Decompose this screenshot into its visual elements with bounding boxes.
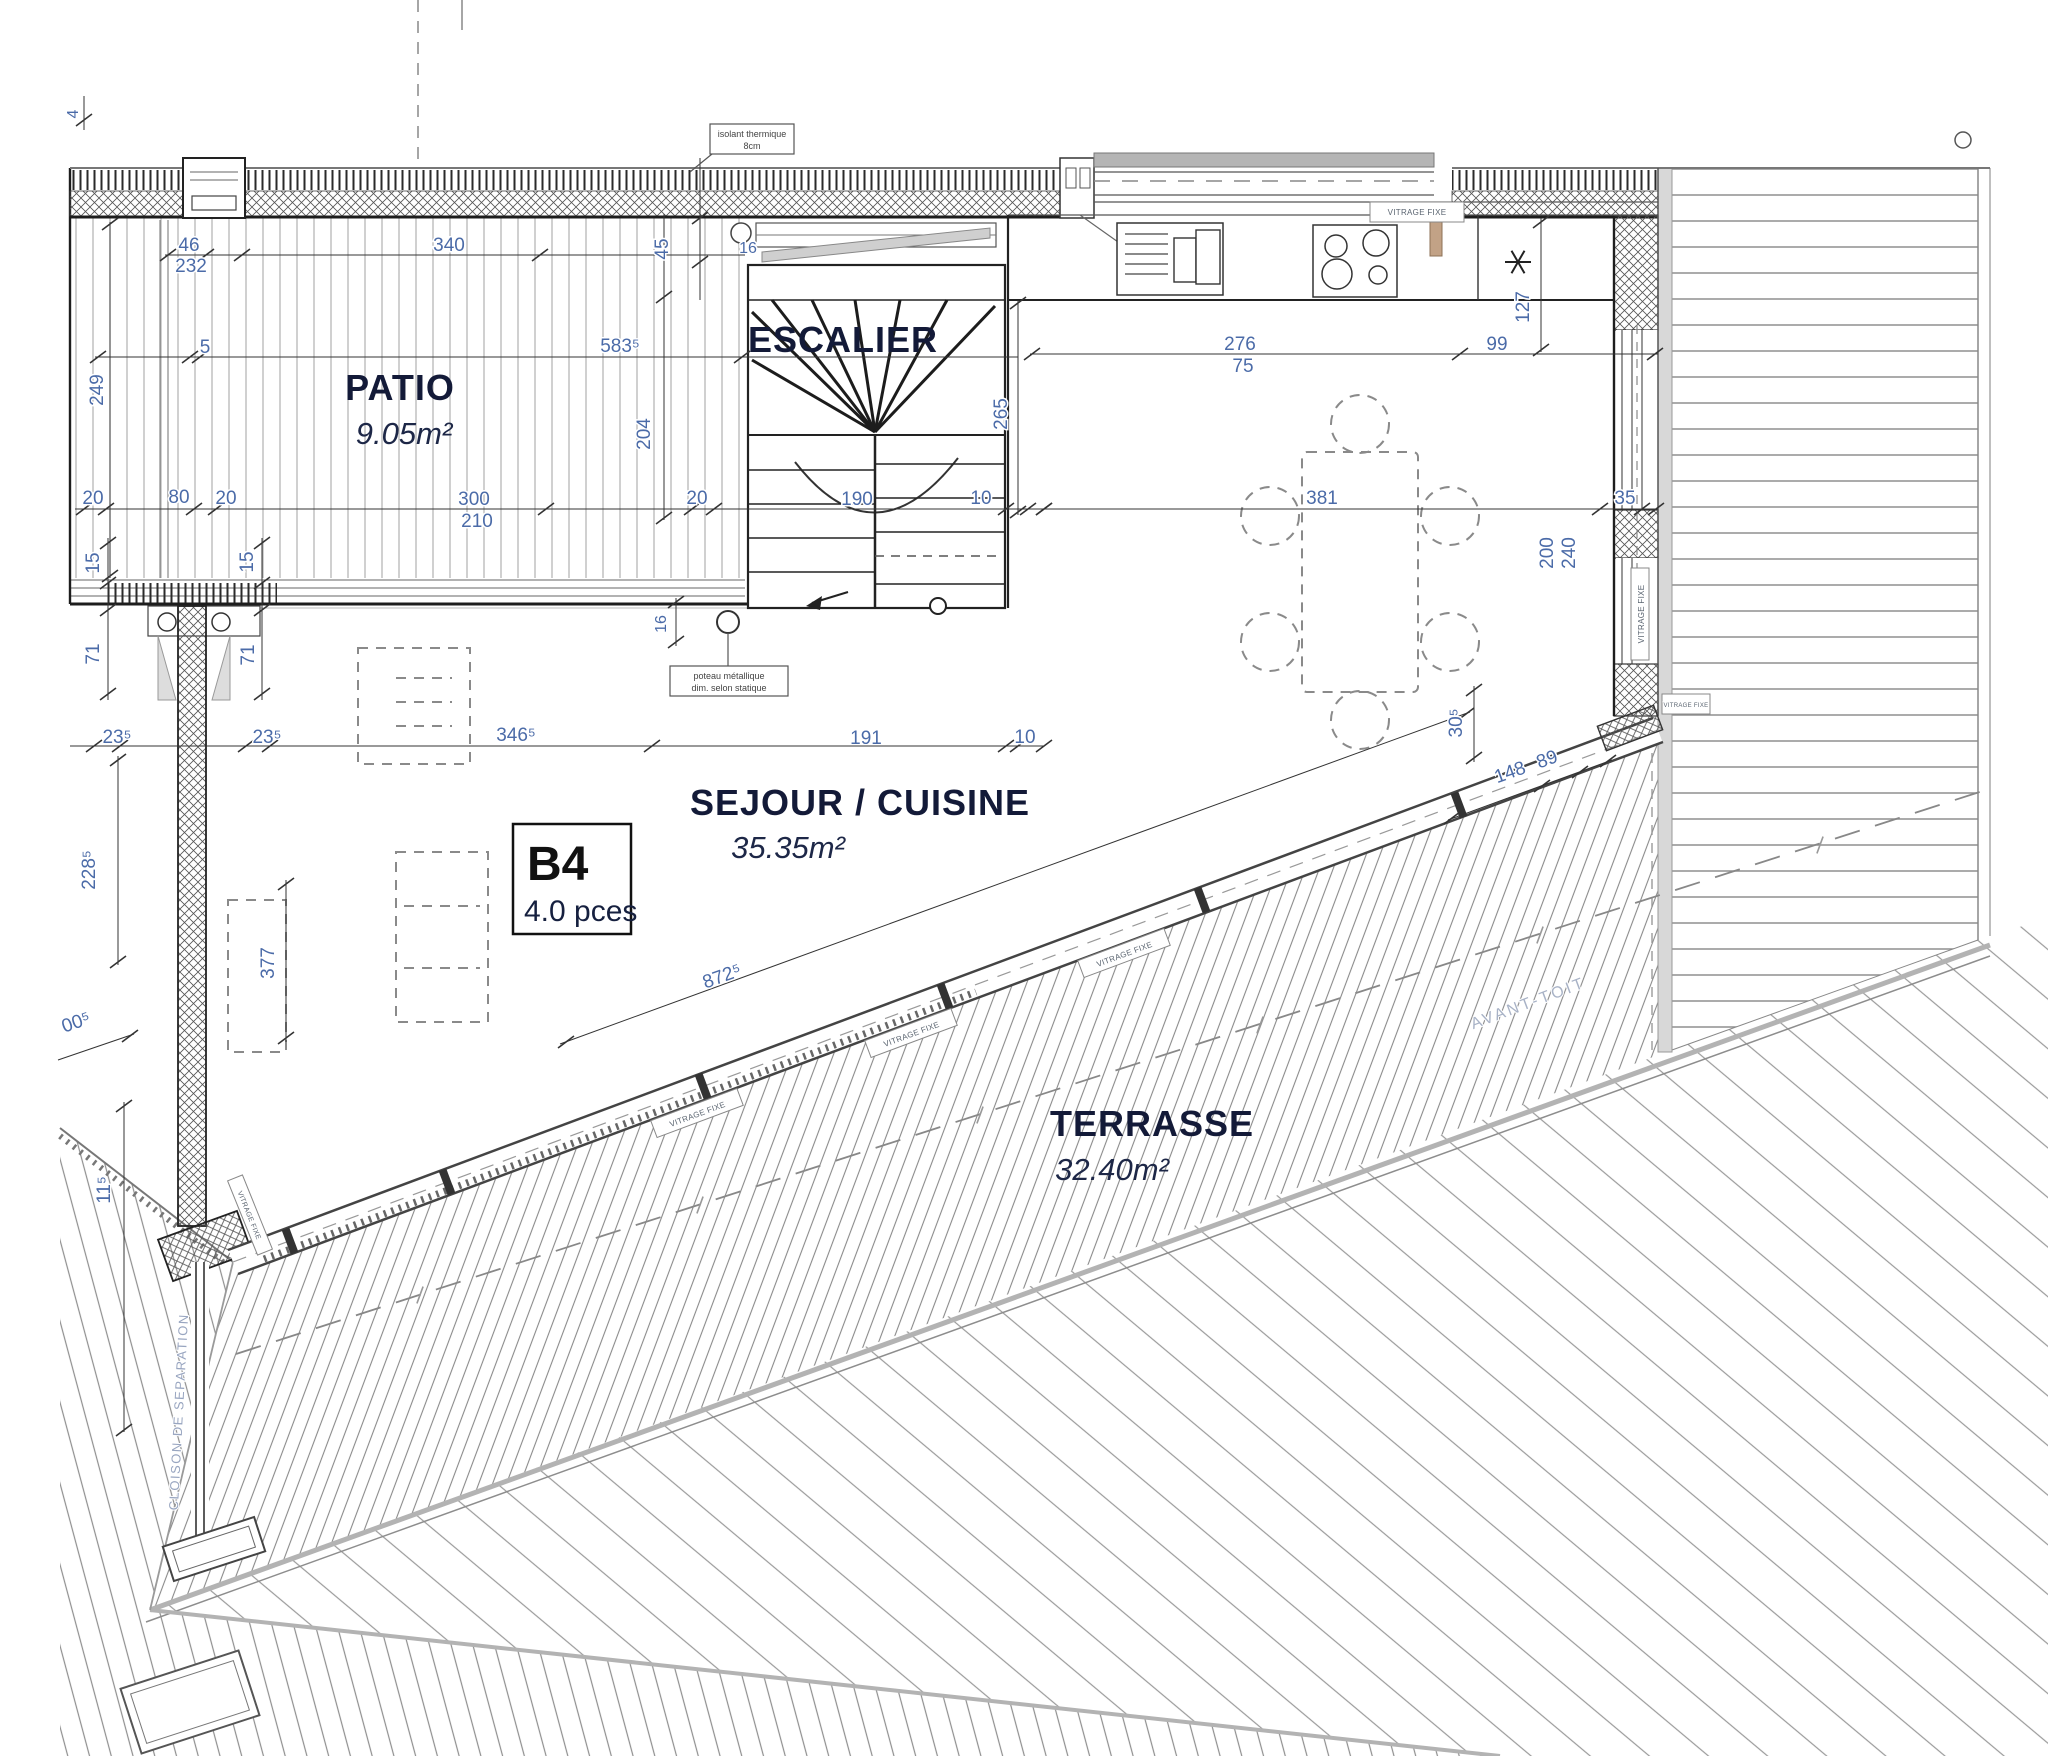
dim-15b: 15 [237, 551, 258, 572]
patio-label: PATIO [345, 367, 455, 408]
dim-228-5: 228⁵ [79, 850, 100, 890]
patio-area: 9.05m² [356, 416, 454, 451]
unit-tag: B4 4.0 pces [513, 824, 637, 934]
dim-20a: 20 [82, 488, 103, 509]
chair [1421, 613, 1479, 671]
window-label-corner-text: VITRAGE FIXE [1664, 703, 1709, 709]
poteau-circle [717, 611, 739, 633]
sejour-label: SEJOUR / CUISINE [690, 782, 1030, 823]
armchair [358, 648, 470, 764]
terrasse-area: 32.40m² [1055, 1152, 1170, 1187]
dim-265: 265 [991, 398, 1012, 430]
isolant-line2: 8cm [743, 141, 760, 151]
dim-35: 35 [1614, 488, 1635, 509]
unit-id: B4 [527, 838, 589, 891]
dim-300: 300 [458, 489, 490, 510]
isolant-line1: isolant thermique [718, 129, 787, 139]
dim-190: 190 [841, 489, 873, 510]
dim-200: 200 [1537, 537, 1558, 569]
poteau-callout: poteau métallique dim. selon statique [670, 611, 788, 696]
chair [1421, 487, 1479, 545]
stair [731, 223, 1005, 614]
dim-4: 4 [65, 109, 82, 118]
dim-71a: 71 [83, 643, 104, 664]
dim-381: 381 [1306, 488, 1338, 509]
isolant-callout: isolant thermique 8cm [690, 124, 794, 172]
terrasse-label: TERRASSE [1050, 1103, 1254, 1144]
window-label-right: VITRAGE FIXE [1631, 568, 1649, 660]
dim-15a: 15 [83, 552, 104, 573]
dim-583-5: 583⁵ [600, 336, 640, 357]
dim-45: 45 [652, 238, 673, 259]
dim-872-5: 872⁵ [700, 960, 744, 993]
door-pivot [158, 613, 176, 631]
dim-11-5: 11⁵ [94, 1176, 115, 1204]
sejour-area: 35.35m² [731, 830, 846, 865]
corner-marker-circle [1955, 132, 1971, 148]
stove [1313, 225, 1397, 297]
poteau-line1: poteau métallique [693, 671, 764, 681]
door-pivot [212, 613, 230, 631]
dim-10b: 10 [1014, 727, 1035, 748]
unit-pieces: 4.0 pces [524, 895, 637, 928]
top-railing-walls [70, 0, 1658, 218]
chair [1331, 395, 1389, 453]
boiler-symbol [1505, 251, 1531, 274]
dim-232: 232 [175, 256, 207, 277]
floor-plan-svg: 4 46 232 340 5 583⁵ 249 45 204 16 20 80 … [0, 0, 2048, 1756]
poteau-line2: dim. selon statique [691, 683, 766, 693]
sofa [396, 852, 488, 1022]
dim-20b: 20 [215, 488, 236, 509]
right-deck [1652, 132, 1990, 1052]
dim-191: 191 [850, 728, 882, 749]
chair [1331, 691, 1389, 749]
dim-346-5: 346⁵ [496, 725, 536, 746]
dim-30-5: 30⁵ [1446, 708, 1467, 737]
dim-10a: 10 [970, 488, 991, 509]
window-label-corner: VITRAGE FIXE [1662, 694, 1710, 714]
dim-71b: 71 [238, 644, 259, 665]
dim-204: 204 [634, 418, 655, 450]
dim-80: 80 [168, 487, 189, 508]
chair [1241, 613, 1299, 671]
chair [1241, 487, 1299, 545]
dim-46: 46 [178, 235, 199, 256]
dim-16a: 16 [739, 240, 757, 257]
dim-127: 127 [1513, 291, 1534, 323]
window-label-top-text: VITRAGE FIXE [1388, 208, 1447, 217]
dim-23-5a: 23⁵ [102, 727, 131, 748]
vent-pipe [1430, 218, 1442, 256]
window-label-right-text: VITRAGE FIXE [1637, 585, 1646, 644]
floor-plan-canvas: 4 46 232 340 5 583⁵ 249 45 204 16 20 80 … [0, 0, 2048, 1756]
dim-5: 5 [200, 337, 211, 358]
dim-23-5b: 23⁵ [252, 727, 281, 748]
dim-249: 249 [87, 374, 108, 406]
dim-00-5: 00⁵ [59, 1008, 93, 1037]
dim-240: 240 [1559, 537, 1580, 569]
dim-20c: 20 [686, 488, 707, 509]
dim-340: 340 [433, 235, 465, 256]
dim-276: 276 [1224, 334, 1256, 355]
dim-377: 377 [258, 947, 279, 979]
dim-75: 75 [1232, 356, 1253, 377]
escalier-label: ESCALIER [748, 319, 938, 360]
newel-post [930, 598, 946, 614]
dim-99: 99 [1486, 334, 1507, 355]
dim-16b: 16 [653, 615, 670, 633]
dim-210: 210 [461, 511, 493, 532]
window-label-top: VITRAGE FIXE [1370, 202, 1464, 222]
